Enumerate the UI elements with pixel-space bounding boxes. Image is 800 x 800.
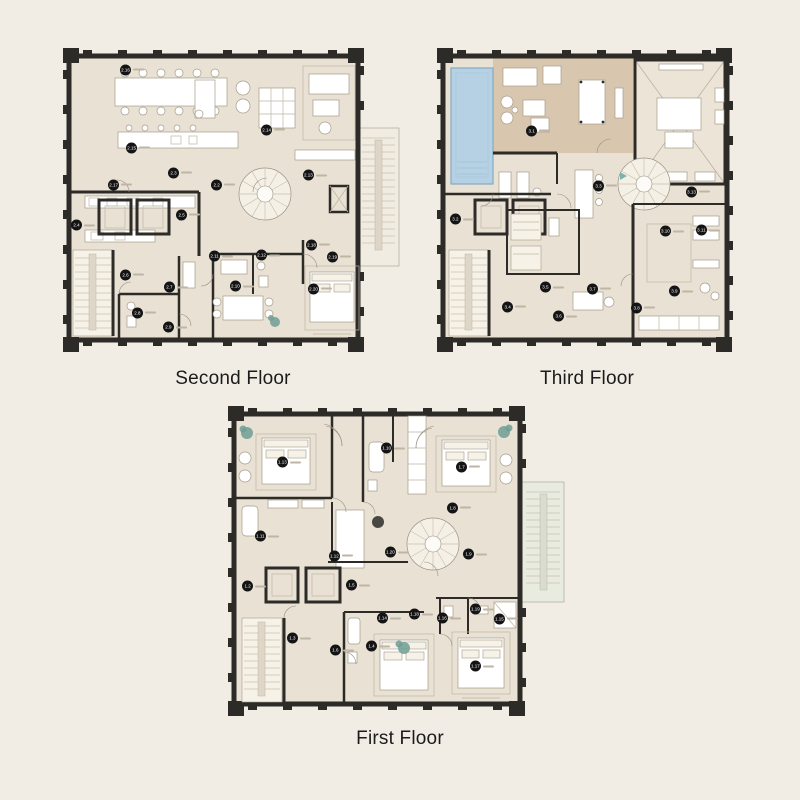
room-area-microtext xyxy=(553,286,564,288)
room-marker-number: 3.3 xyxy=(593,180,604,191)
room-area-microtext xyxy=(177,286,188,288)
room-area-microtext xyxy=(566,315,577,317)
room-area-microtext xyxy=(450,617,461,619)
room-area-microtext xyxy=(483,608,494,610)
room-marker-number: 2.13 xyxy=(303,170,314,181)
room-marker-3.6: 3.6 xyxy=(553,311,577,322)
room-marker-3.2: 3.2 xyxy=(450,214,474,225)
floorplan-sheet: 2.162.142.152.172.32.22.132.42.52.62.82.… xyxy=(0,0,800,800)
second-floor-plan: 2.162.142.152.172.32.22.132.42.52.62.82.… xyxy=(63,44,403,360)
room-marker-number: 1.19 xyxy=(470,604,481,615)
room-area-microtext xyxy=(682,290,693,292)
room-marker-3.9: 3.9 xyxy=(669,286,693,297)
room-marker-number: 2.4 xyxy=(71,220,82,231)
room-marker-2.9: 2.9 xyxy=(163,322,187,333)
room-marker-1.12: 1.12 xyxy=(329,550,353,561)
room-marker-1.6: 1.6 xyxy=(330,645,354,656)
room-area-microtext xyxy=(269,254,280,256)
room-marker-2.19: 2.19 xyxy=(327,251,351,262)
room-marker-number: 2.20 xyxy=(308,283,319,294)
room-area-microtext xyxy=(139,147,150,149)
room-marker-2.6: 2.6 xyxy=(120,269,144,280)
room-marker-number: 3.6 xyxy=(553,311,564,322)
room-marker-number: 1.12 xyxy=(329,550,340,561)
room-marker-number: 3.8 xyxy=(631,302,642,313)
room-marker-number: 1.16 xyxy=(437,613,448,624)
room-marker-1.7: 1.7 xyxy=(456,461,480,472)
room-area-microtext xyxy=(476,553,487,555)
room-area-microtext xyxy=(390,617,401,619)
room-marker-3.13: 3.13 xyxy=(686,186,710,197)
room-marker-3.8: 3.8 xyxy=(631,302,655,313)
room-area-microtext xyxy=(359,584,370,586)
room-marker-number: 2.2 xyxy=(211,179,222,190)
room-area-microtext xyxy=(342,555,353,557)
room-area-microtext xyxy=(121,184,132,186)
room-marker-1.14: 1.14 xyxy=(377,613,401,624)
first-floor-label: First Floor xyxy=(228,728,572,750)
room-marker-2.14: 2.14 xyxy=(261,124,285,135)
room-area-microtext xyxy=(290,461,301,463)
room-marker-1.8: 1.8 xyxy=(447,502,471,513)
room-marker-number: 2.12 xyxy=(256,250,267,261)
room-marker-2.11: 2.11 xyxy=(209,251,233,262)
room-marker-number: 1.13 xyxy=(277,457,288,468)
room-marker-1.19: 1.19 xyxy=(470,604,494,615)
room-marker-number: 1.2 xyxy=(242,581,253,592)
room-area-microtext xyxy=(460,507,471,509)
room-area-microtext xyxy=(398,551,409,553)
room-marker-number: 1.3 xyxy=(287,633,298,644)
room-marker-2.10: 2.10 xyxy=(230,281,254,292)
room-area-microtext xyxy=(316,174,327,176)
room-marker-1.3: 1.3 xyxy=(287,633,311,644)
room-marker-number: 2.16 xyxy=(120,64,131,75)
room-marker-2.8: 2.8 xyxy=(132,307,156,318)
room-area-microtext xyxy=(321,288,332,290)
room-area-microtext xyxy=(379,645,390,647)
room-area-microtext xyxy=(600,288,611,290)
room-area-microtext xyxy=(224,184,235,186)
room-marker-3.11: 3.11 xyxy=(696,225,720,236)
room-marker-number: 1.5 xyxy=(346,580,357,591)
room-area-microtext xyxy=(84,224,95,226)
room-area-microtext xyxy=(145,312,156,314)
room-marker-number: 3.7 xyxy=(587,283,598,294)
room-marker-3.1: 3.1 xyxy=(526,125,550,136)
room-marker-number: 2.15 xyxy=(126,142,137,153)
room-marker-3.10: 3.10 xyxy=(660,226,684,237)
room-marker-number: 3.5 xyxy=(540,282,551,293)
room-marker-number: 2.7 xyxy=(164,282,175,293)
room-area-microtext xyxy=(483,665,494,667)
first-floor-plan: 1.131.101.71.81.111.121.201.91.21.51.141… xyxy=(228,402,572,722)
room-area-microtext xyxy=(181,172,192,174)
room-marker-1.16: 1.16 xyxy=(437,613,461,624)
room-marker-2.15: 2.15 xyxy=(126,142,150,153)
room-marker-3.5: 3.5 xyxy=(540,282,564,293)
second-floor-label: Second Floor xyxy=(63,368,403,390)
room-marker-number: 3.2 xyxy=(450,214,461,225)
room-area-microtext xyxy=(300,637,311,639)
room-marker-1.11: 1.11 xyxy=(255,531,279,542)
third-floor-plan: 3.13.33.133.23.43.53.63.73.83.93.103.11 xyxy=(437,44,737,360)
room-area-microtext xyxy=(176,326,187,328)
room-area-microtext xyxy=(469,466,480,468)
room-area-microtext xyxy=(343,649,354,651)
room-marker-1.9: 1.9 xyxy=(463,549,487,560)
first-floor-markers: 1.131.101.71.81.111.121.201.91.21.51.141… xyxy=(228,402,572,722)
room-marker-1.10: 1.10 xyxy=(381,443,405,454)
room-area-microtext xyxy=(222,255,233,257)
third-floor-markers: 3.13.33.133.23.43.53.63.73.83.93.103.11 xyxy=(437,44,737,360)
room-area-microtext xyxy=(394,447,405,449)
room-area-microtext xyxy=(699,191,710,193)
room-marker-number: 1.15 xyxy=(494,613,505,624)
room-area-microtext xyxy=(709,229,720,231)
room-marker-1.4: 1.4 xyxy=(366,641,390,652)
second-floor-markers: 2.162.142.152.172.32.22.132.42.52.62.82.… xyxy=(63,44,403,360)
room-marker-2.5: 2.5 xyxy=(176,209,200,220)
room-marker-number: 1.7 xyxy=(456,461,467,472)
room-marker-3.3: 3.3 xyxy=(593,180,617,191)
room-area-microtext xyxy=(274,129,285,131)
room-marker-number: 1.17 xyxy=(470,661,481,672)
room-marker-number: 2.17 xyxy=(108,179,119,190)
room-area-microtext xyxy=(422,613,433,615)
room-area-microtext xyxy=(673,230,684,232)
room-marker-3.4: 3.4 xyxy=(502,301,526,312)
room-marker-3.7: 3.7 xyxy=(587,283,611,294)
room-area-microtext xyxy=(463,218,474,220)
room-marker-2.3: 2.3 xyxy=(168,167,192,178)
room-marker-1.15: 1.15 xyxy=(494,613,518,624)
room-marker-number: 1.8 xyxy=(447,502,458,513)
room-marker-number: 1.6 xyxy=(330,645,341,656)
room-marker-2.7: 2.7 xyxy=(164,282,188,293)
room-marker-number: 1.4 xyxy=(366,641,377,652)
room-marker-1.13: 1.13 xyxy=(277,457,301,468)
room-marker-number: 2.9 xyxy=(163,322,174,333)
room-marker-2.4: 2.4 xyxy=(71,220,95,231)
room-area-microtext xyxy=(340,256,351,258)
room-marker-1.20: 1.20 xyxy=(385,547,409,558)
room-area-microtext xyxy=(268,535,279,537)
room-area-microtext xyxy=(507,618,518,620)
room-marker-number: 1.14 xyxy=(377,613,388,624)
room-marker-number: 2.8 xyxy=(132,307,143,318)
room-marker-number: 2.3 xyxy=(168,167,179,178)
room-marker-2.2: 2.2 xyxy=(211,179,235,190)
room-marker-number: 2.6 xyxy=(120,269,131,280)
room-marker-number: 2.14 xyxy=(261,124,272,135)
room-marker-number: 1.11 xyxy=(255,531,266,542)
room-marker-2.13: 2.13 xyxy=(303,170,327,181)
room-marker-2.12: 2.12 xyxy=(256,250,280,261)
room-area-microtext xyxy=(515,306,526,308)
room-marker-number: 3.11 xyxy=(696,225,707,236)
room-area-microtext xyxy=(539,130,550,132)
room-area-microtext xyxy=(255,585,266,587)
room-marker-number: 1.10 xyxy=(381,443,392,454)
room-marker-number: 3.9 xyxy=(669,286,680,297)
room-area-microtext xyxy=(189,214,200,216)
room-marker-number: 2.5 xyxy=(176,209,187,220)
room-marker-number: 3.4 xyxy=(502,301,513,312)
room-marker-number: 3.10 xyxy=(660,226,671,237)
room-area-microtext xyxy=(319,244,330,246)
room-marker-2.17: 2.17 xyxy=(108,179,132,190)
room-marker-number: 2.10 xyxy=(230,281,241,292)
room-area-microtext xyxy=(644,307,655,309)
room-marker-1.5: 1.5 xyxy=(346,580,370,591)
room-area-microtext xyxy=(133,274,144,276)
room-marker-1.17: 1.17 xyxy=(470,661,494,672)
third-floor-label: Third Floor xyxy=(437,368,737,390)
room-marker-number: 1.9 xyxy=(463,549,474,560)
room-marker-number: 1.18 xyxy=(409,609,420,620)
room-area-microtext xyxy=(606,185,617,187)
room-marker-number: 2.18 xyxy=(306,239,317,250)
room-area-microtext xyxy=(133,69,144,71)
room-marker-2.18: 2.18 xyxy=(306,239,330,250)
room-marker-number: 1.20 xyxy=(385,547,396,558)
room-marker-1.18: 1.18 xyxy=(409,609,433,620)
room-area-microtext xyxy=(243,285,254,287)
room-marker-1.2: 1.2 xyxy=(242,581,266,592)
room-marker-number: 3.1 xyxy=(526,125,537,136)
room-marker-2.16: 2.16 xyxy=(120,64,144,75)
room-marker-2.20: 2.20 xyxy=(308,283,332,294)
room-marker-number: 2.11 xyxy=(209,251,220,262)
room-marker-number: 3.13 xyxy=(686,186,697,197)
room-marker-number: 2.19 xyxy=(327,251,338,262)
